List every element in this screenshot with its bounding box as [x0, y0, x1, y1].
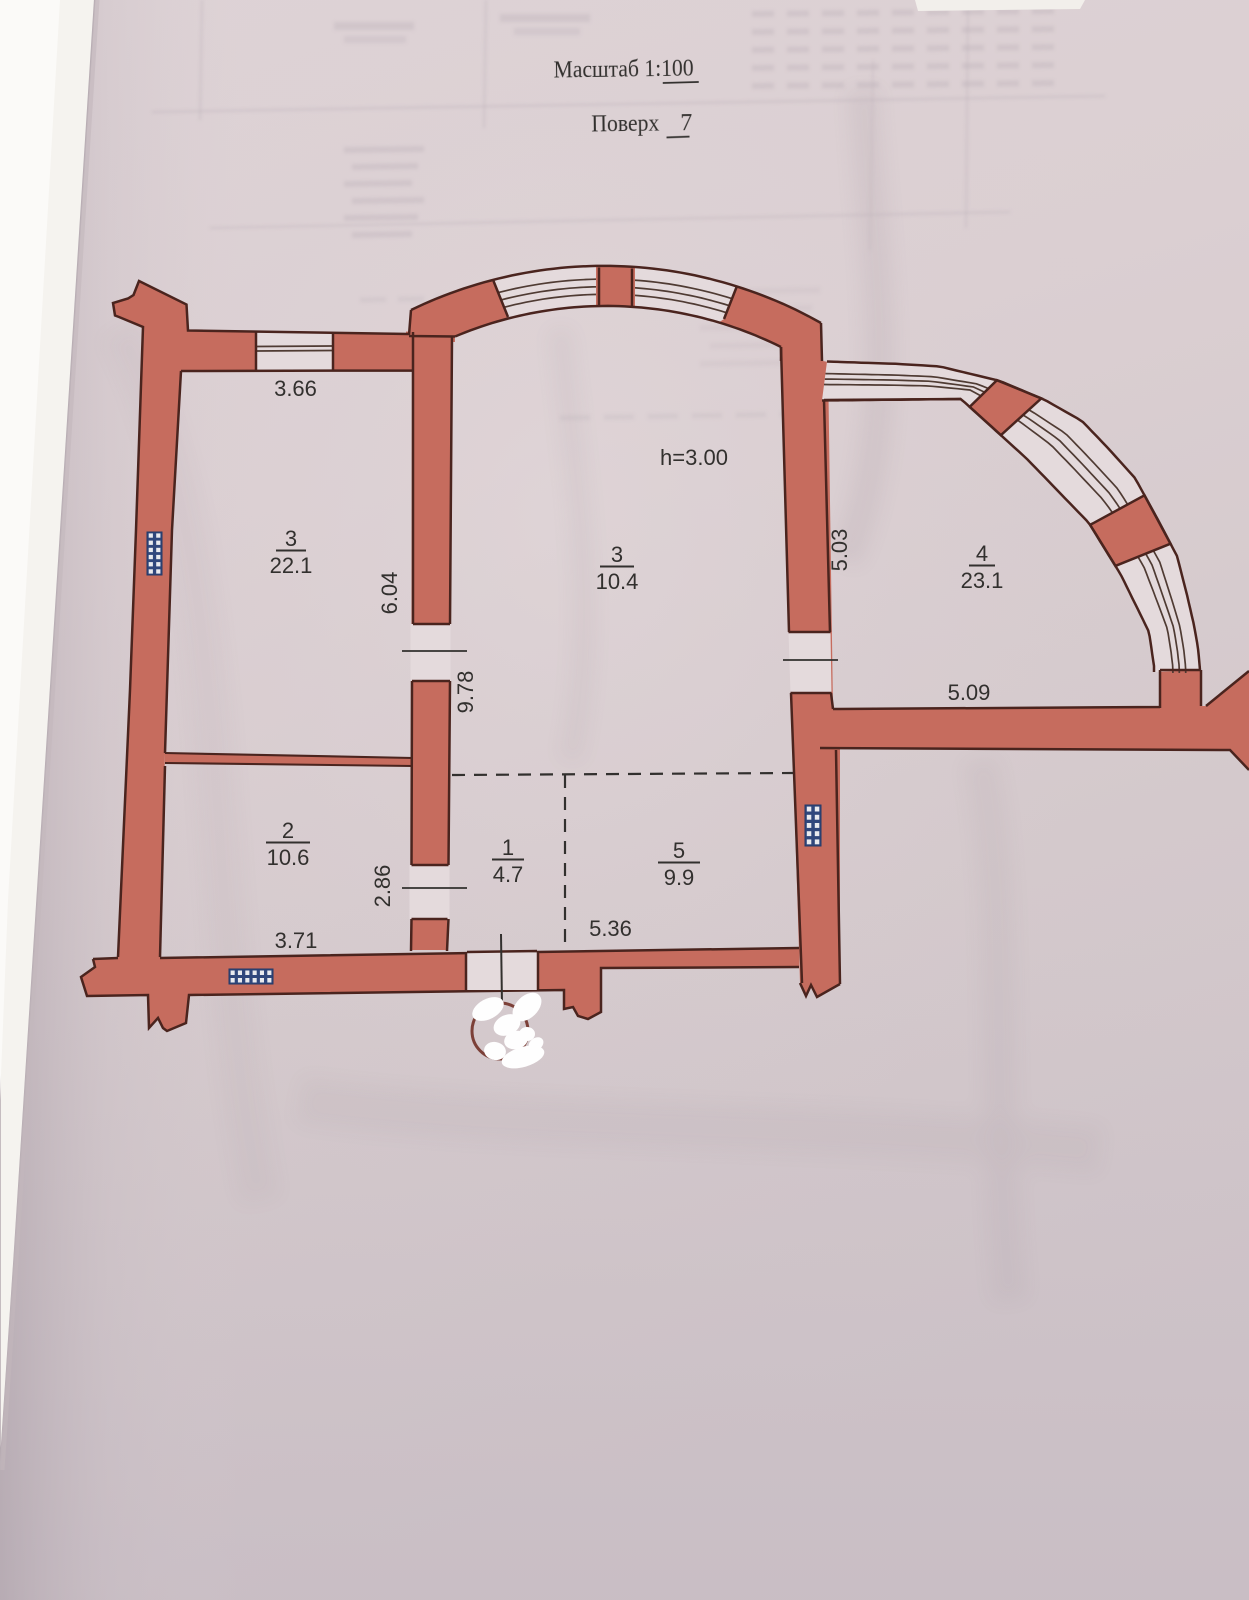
svg-text:4.7: 4.7: [493, 862, 524, 887]
svg-text:5.09: 5.09: [948, 680, 991, 705]
svg-text:Поверх: Поверх: [591, 111, 659, 138]
svg-text:2.86: 2.86: [370, 865, 395, 908]
svg-text:3.66: 3.66: [274, 376, 317, 401]
svg-text:7: 7: [680, 110, 692, 136]
svg-text:4: 4: [976, 541, 988, 566]
svg-text:23.1: 23.1: [961, 568, 1004, 593]
svg-text:10.6: 10.6: [267, 845, 310, 870]
svg-text:Масштаб 1:100: Масштаб 1:100: [553, 56, 693, 84]
svg-text:9.78: 9.78: [453, 671, 478, 714]
svg-text:10.4: 10.4: [596, 569, 639, 594]
svg-text:9.9: 9.9: [664, 865, 695, 890]
svg-text:22.1: 22.1: [270, 553, 313, 578]
svg-text:3: 3: [285, 526, 297, 551]
svg-text:5: 5: [673, 838, 685, 863]
svg-text:6.04: 6.04: [377, 572, 402, 615]
svg-text:2: 2: [282, 818, 294, 843]
svg-text:5.36: 5.36: [589, 916, 632, 941]
svg-text:3: 3: [611, 542, 623, 567]
svg-text:5.03: 5.03: [827, 529, 852, 572]
svg-text:1: 1: [502, 835, 514, 860]
svg-text:h=3.00: h=3.00: [660, 445, 728, 470]
svg-text:3.71: 3.71: [275, 928, 318, 953]
